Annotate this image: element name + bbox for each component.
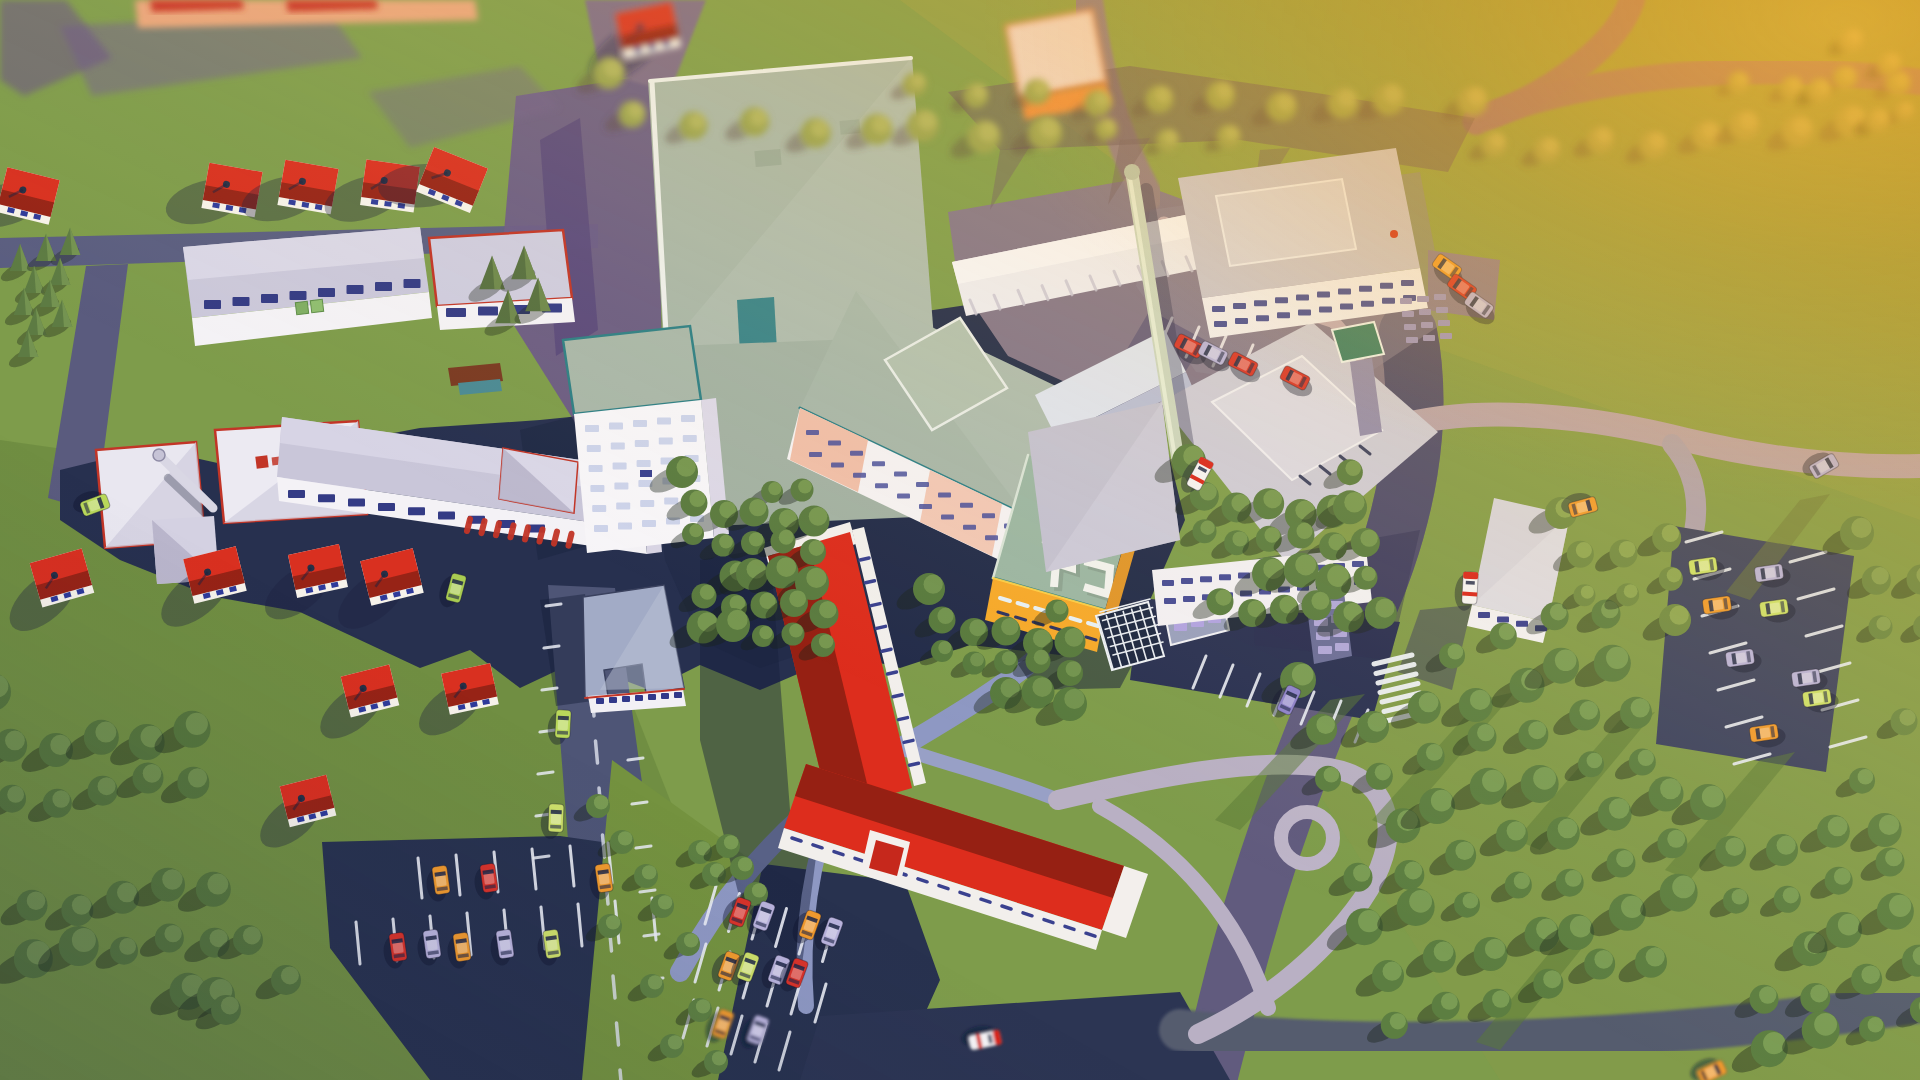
campus-map-render: [0, 0, 1920, 1080]
campus-3d-map: Aerial 3D low-poly map render of a hospi…: [0, 0, 1920, 1080]
cool-shadow-wash: [0, 0, 1920, 1080]
